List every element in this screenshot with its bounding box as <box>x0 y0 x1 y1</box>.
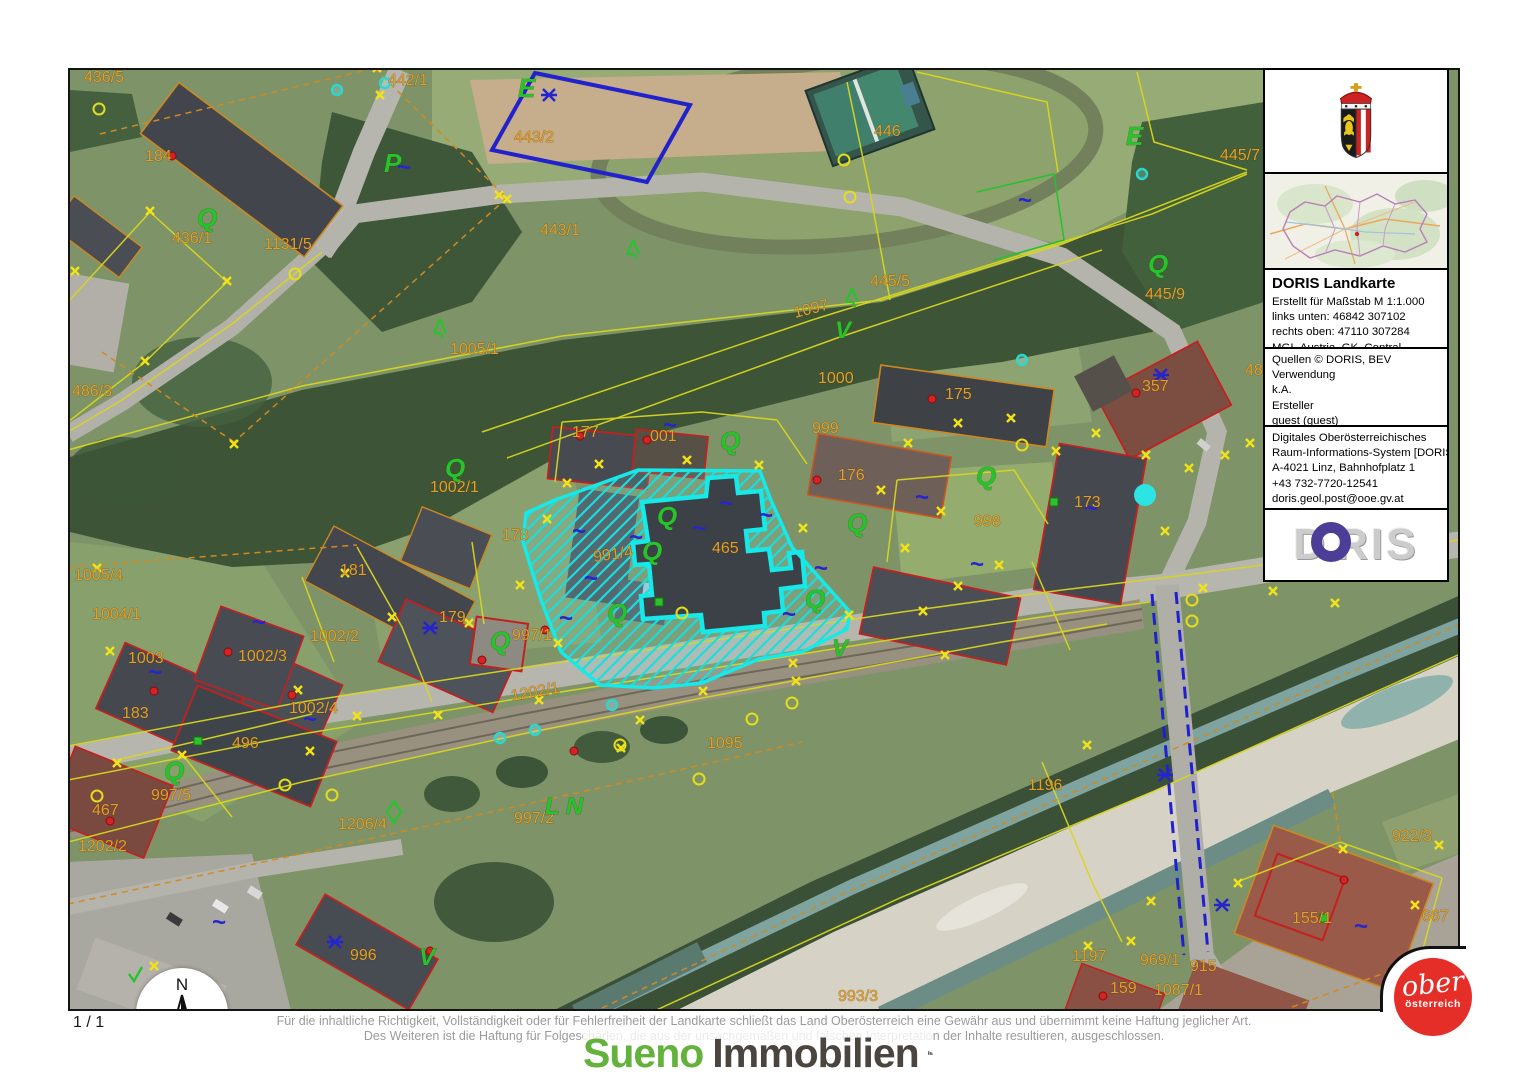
parcel-number-label: 445/7 <box>1220 147 1260 164</box>
parcel-number-label: 667 <box>1422 908 1449 925</box>
parcel-number-label: 1002/2 <box>310 628 359 645</box>
landuse-letter-symbol: Q <box>976 461 996 491</box>
upper-austria-crest-icon <box>1321 71 1391 171</box>
water-symbol: ~ <box>559 605 573 632</box>
ooe-logo: ober österreich <box>1394 958 1472 1036</box>
cyan-ring-marker <box>1137 169 1147 179</box>
parcel-number-label: 183 <box>122 705 149 722</box>
landuse-letter-symbol: Q <box>642 536 662 566</box>
parcel-number-label: 179 <box>439 609 466 626</box>
landuse-letter-symbol: Q <box>164 756 184 786</box>
water-symbol: ~ <box>814 555 828 582</box>
parcel-number-label: 443/2 <box>514 129 554 146</box>
green-square-symbol <box>1050 498 1058 506</box>
sources-line: Quellen © DORIS, BEV <box>1272 353 1440 368</box>
contact-info-box: Digitales Oberösterreichisches Raum-Info… <box>1263 425 1449 510</box>
building-dot-marker <box>288 691 296 699</box>
scale-info: Erstellt für Maßstab M 1:1.000 <box>1272 295 1440 310</box>
parcel-number-label: 155/1 <box>1292 910 1332 927</box>
parcel-number-label: 159 <box>1110 980 1137 997</box>
org-address: A-4021 Linz, Bahnhofplatz 1 <box>1272 461 1440 476</box>
parcel-number-label: 1202/2 <box>78 838 127 855</box>
cyan-ring-marker <box>607 700 617 710</box>
parcel-number-label: 178 <box>502 527 529 544</box>
landuse-letter-symbol: V <box>835 317 853 344</box>
water-symbol: ~ <box>572 518 586 545</box>
north-arrow: N <box>136 968 228 1011</box>
org-phone: +43 732-7720-12541 <box>1272 477 1440 492</box>
building-dot-marker <box>928 395 936 403</box>
building-dot-marker <box>570 747 578 755</box>
map-title-box: DORIS Landkarte Erstellt für Maßstab M 1… <box>1263 268 1449 349</box>
landuse-letter-symbol: V <box>832 635 850 662</box>
parcel-number-label: 001 <box>650 428 677 445</box>
doris-logo-box: D RIS <box>1263 508 1449 582</box>
green-square-symbol <box>194 737 202 745</box>
creator-label: Ersteller <box>1272 399 1440 414</box>
doris-logo: D RIS <box>1293 510 1418 580</box>
parcel-number-label: 922/3 <box>1392 828 1432 845</box>
parcel-number-label: 999 <box>812 420 839 437</box>
water-symbol: ~ <box>1354 913 1368 940</box>
parcel-number-label: 1002/4 <box>289 700 338 717</box>
parcel-number-label: 1206/4 <box>338 816 387 833</box>
landuse-letter-symbol: Q <box>607 598 627 628</box>
doris-map-page: ~~~~~~~~~~~~~~~~~~~~ 436/5442/1443/24464… <box>0 0 1527 1080</box>
water-symbol: ~ <box>584 565 598 592</box>
landuse-letter-symbol: V <box>419 944 437 971</box>
parcel-number-label: 1003 <box>128 650 164 667</box>
coords-lower-left: links unten: 46842 307102 <box>1272 310 1440 325</box>
parcel-number-label: 915 <box>1190 958 1217 975</box>
landuse-letter-symbol: E <box>1126 121 1144 151</box>
north-arrow-icon <box>136 968 228 1011</box>
cyan-ring-marker <box>530 725 540 735</box>
parcel-number-label: 175 <box>945 386 972 403</box>
parcel-number-label: 1005/4 <box>74 567 123 584</box>
parcel-number-label: 467 <box>92 802 119 819</box>
parcel-number-label: 998 <box>974 513 1001 530</box>
building-dot-marker <box>1099 992 1107 1000</box>
cyan-ring-marker <box>1017 355 1027 365</box>
cyan-ring-marker <box>495 733 505 743</box>
parcel-number-label: 181 <box>340 562 367 579</box>
parcel-number-label: 445/9 <box>1145 286 1185 303</box>
parcel-number-label: 1087/1 <box>1154 982 1203 999</box>
parcel-number-label: 1000 <box>818 370 854 387</box>
parcel-number-label: 993/3 <box>838 988 878 1005</box>
buildings-icon <box>928 1028 933 1078</box>
parcel-number-label: 1131/5 <box>264 236 312 253</box>
parcel-number-label: 496 <box>232 735 259 752</box>
org-name-1: Digitales Oberösterreichisches <box>1272 431 1440 446</box>
parcel-number-label: 184 <box>145 148 172 165</box>
landuse-letter-symbol: E <box>518 73 536 103</box>
water-symbol: ~ <box>1018 187 1032 214</box>
water-symbol: ~ <box>212 909 226 936</box>
parcel-number-label: 442/1 <box>388 72 428 89</box>
landuse-letter-symbol: Q <box>720 426 740 456</box>
org-email: doris.geol.post@ooe.gv.at <box>1272 492 1440 507</box>
water-symbol: ~ <box>252 609 266 636</box>
landuse-letter-symbol: Q <box>490 626 510 656</box>
landuse-letter-symbol: Q <box>1148 249 1168 279</box>
water-symbol: ~ <box>970 551 984 578</box>
water-symbol: ~ <box>915 484 929 511</box>
parcel-number-label: 486/3 <box>72 383 112 400</box>
landuse-letter-symbol: Q <box>847 508 867 538</box>
parcel-number-label: 177 <box>572 424 599 441</box>
ooe-logo-text-1: ober <box>1393 968 1473 1002</box>
landuse-letter-symbol: Q <box>805 584 825 614</box>
parcel-number-label: 445/5 <box>870 273 910 290</box>
parcel-number-label: 173 <box>1074 494 1101 511</box>
parcel-number-label: 443/1 <box>540 222 580 239</box>
parcel-number-label: 1197 <box>1072 948 1107 965</box>
parcel-number-label: 969/1 <box>1140 952 1180 969</box>
building-dot-marker <box>150 687 158 695</box>
coat-of-arms-box <box>1263 68 1449 174</box>
building-dot-marker <box>1340 876 1348 884</box>
parcel-number-label: 1095 <box>707 735 743 752</box>
map-canvas: ~~~~~~~~~~~~~~~~~~~~ 436/5442/1443/24464… <box>68 68 1460 1011</box>
parcel-number-label: 1002/3 <box>238 648 287 665</box>
overview-map-box <box>1263 172 1449 270</box>
map-title: DORIS Landkarte <box>1272 275 1440 292</box>
water-symbol: ~ <box>719 490 733 517</box>
water-symbol: ~ <box>759 502 773 529</box>
sueno-logo-text-2: Immobilien <box>712 1030 918 1077</box>
parcel-number-label: 1196 <box>1028 777 1063 794</box>
parcel-number-label: 357 <box>1142 378 1169 395</box>
parcel-number-label: 1005/1 <box>450 341 499 358</box>
green-square-symbol <box>655 598 663 606</box>
usage-label: Verwendung <box>1272 368 1440 383</box>
org-name-2: Raum-Informations-System [DORIS] <box>1272 446 1440 461</box>
parcel-number-label: 996 <box>350 947 377 964</box>
landuse-letter-symbol: Q <box>657 501 677 531</box>
building-dot-marker <box>813 476 821 484</box>
map-frame: ~~~~~~~~~~~~~~~~~~~~ 436/5442/1443/24464… <box>68 68 1460 1011</box>
parcel-number-label: 465 <box>712 540 739 557</box>
selection-point-marker <box>1134 484 1156 506</box>
water-symbol: ~ <box>782 601 796 628</box>
building-dot-marker <box>224 648 232 656</box>
info-sidebar: DORIS Landkarte Erstellt für Maßstab M 1… <box>1263 68 1449 582</box>
sueno-logo-text-1: Sueno <box>583 1030 703 1077</box>
landuse-letter-symbol: L N <box>545 793 584 820</box>
parcel-number-label: 48 <box>1245 362 1263 379</box>
parcel-number-label: 997/1 <box>512 627 552 644</box>
source-info-box: Quellen © DORIS, BEV Verwendung k.A. Ers… <box>1263 347 1449 427</box>
landuse-letter-symbol: Q <box>445 453 465 483</box>
landuse-letter-symbol: P <box>384 148 402 178</box>
coords-upper-right: rechts oben: 47110 307284 <box>1272 325 1440 340</box>
water-symbol: ~ <box>692 515 706 542</box>
cyan-ring-marker <box>332 85 342 95</box>
building-dot-marker <box>478 656 486 664</box>
overview-map <box>1265 174 1447 268</box>
parcel-number-label: 446 <box>874 123 901 140</box>
doris-logo-o-ring-icon <box>1311 522 1351 562</box>
usage-value: k.A. <box>1272 383 1440 398</box>
building-dot-marker <box>1132 389 1140 397</box>
sueno-immobilien-logo: Sueno Immobilien <box>583 1026 933 1080</box>
landuse-letter-symbol: Q <box>197 203 217 233</box>
parcel-number-label: 176 <box>838 467 865 484</box>
parcel-number-label: 997/5 <box>151 787 191 804</box>
parcel-number-label: 1004/1 <box>92 606 141 623</box>
parcel-number-label: 436/5 <box>84 69 124 86</box>
